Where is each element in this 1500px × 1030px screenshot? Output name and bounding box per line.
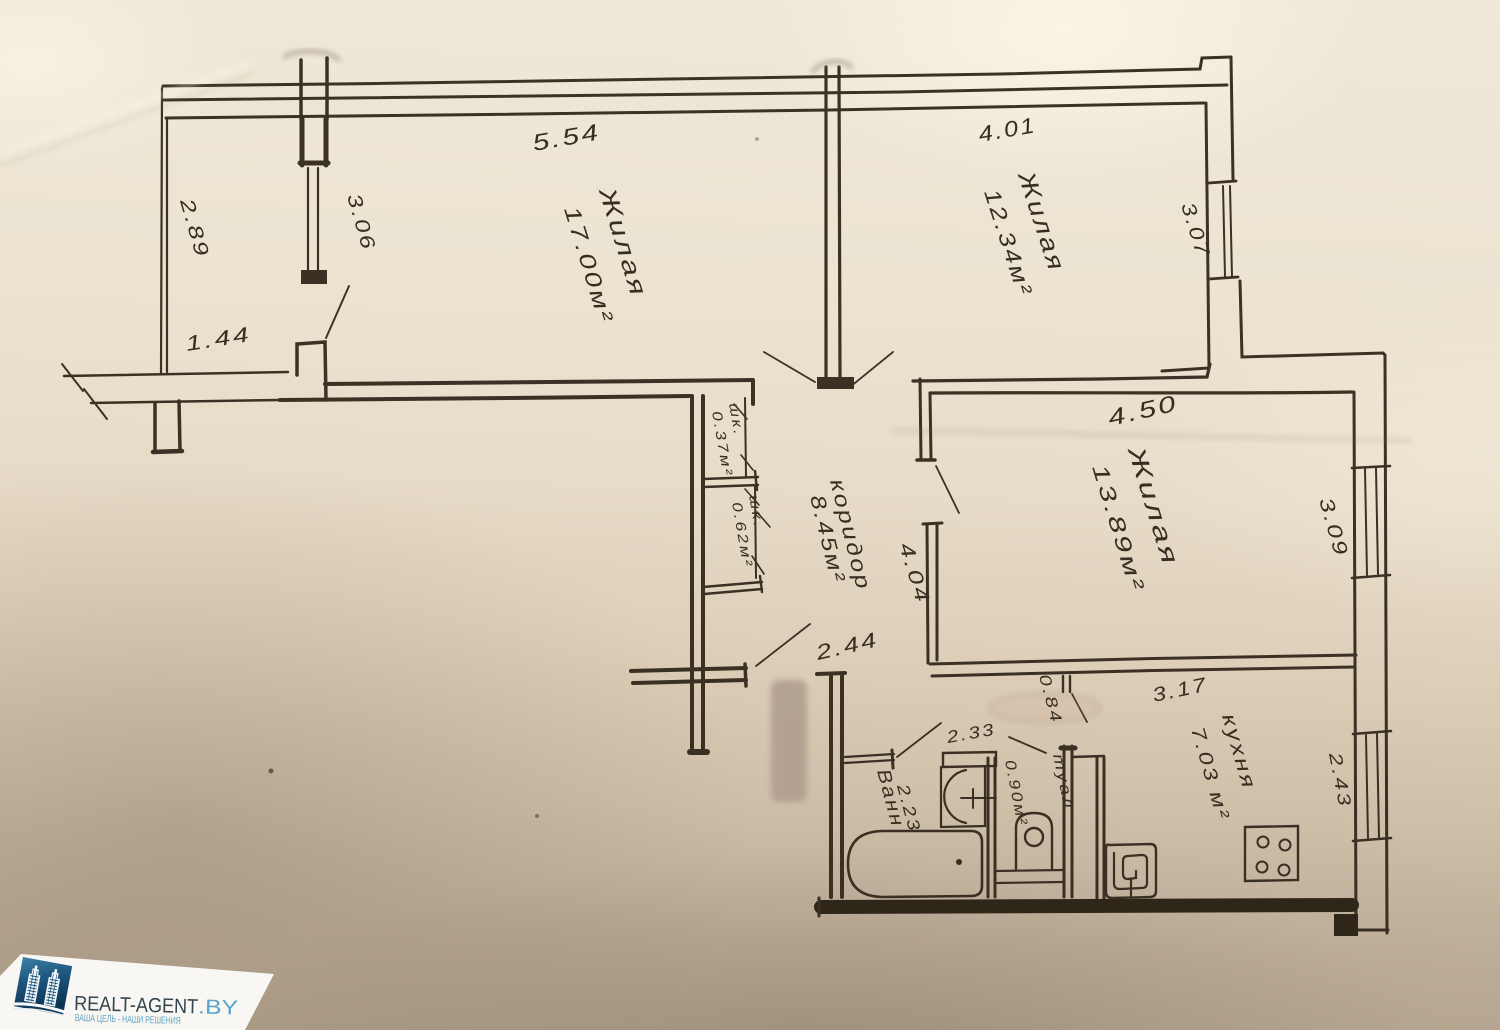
svg-text:2.43: 2.43	[1325, 750, 1355, 810]
svg-text:.BY: .BY	[198, 995, 239, 1019]
svg-text:4.01: 4.01	[977, 114, 1039, 148]
svg-text:2.89: 2.89	[176, 195, 215, 261]
svg-text:2.44: 2.44	[813, 628, 881, 665]
svg-text:4.50: 4.50	[1105, 389, 1180, 430]
svg-text:3.06: 3.06	[343, 191, 380, 253]
svg-text:туал: туал	[1050, 752, 1079, 812]
svg-text:шк.: шк.	[725, 402, 746, 438]
svg-text:2.33: 2.33	[944, 719, 997, 746]
svg-text:1.44: 1.44	[184, 322, 253, 356]
svg-text:5.54: 5.54	[530, 119, 602, 156]
svg-text:кухня: кухня	[1218, 711, 1261, 792]
svg-text:шк.: шк.	[745, 494, 766, 530]
svg-text:3.17: 3.17	[1150, 673, 1210, 707]
svg-text:0.90м²: 0.90м²	[1001, 758, 1031, 828]
svg-text:3.07: 3.07	[1177, 200, 1215, 260]
svg-text:3.09: 3.09	[1315, 495, 1353, 560]
